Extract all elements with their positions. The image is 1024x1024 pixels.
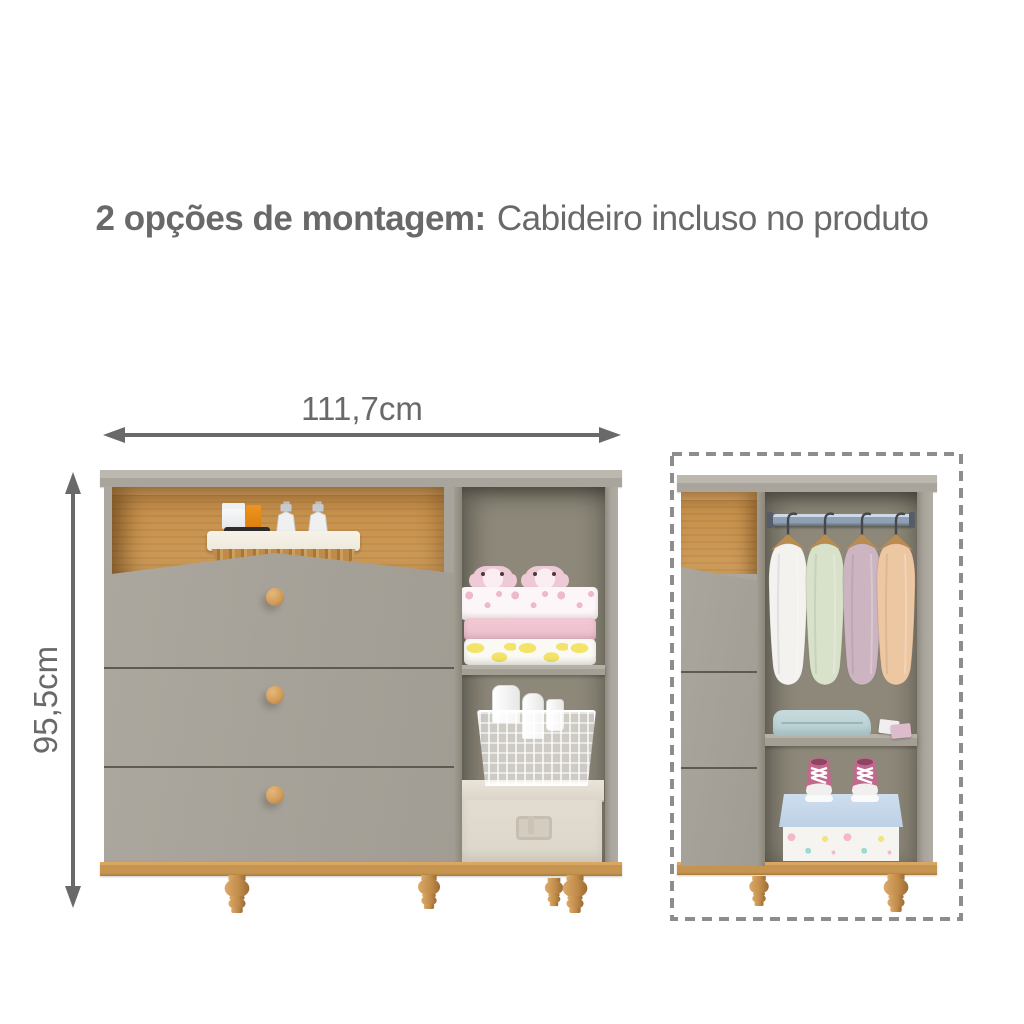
dresser-option-view bbox=[100, 470, 622, 912]
blanket-pink-print bbox=[460, 587, 598, 620]
wardrobe-cabinet bbox=[677, 475, 937, 910]
drawer-2 bbox=[104, 669, 454, 766]
folded-teal-blanket bbox=[773, 710, 871, 736]
drawer-knob bbox=[266, 686, 284, 704]
height-arrow-icon bbox=[57, 472, 89, 908]
storage-box-beige bbox=[462, 800, 602, 862]
basket-liner bbox=[207, 531, 360, 551]
orange-tube bbox=[246, 505, 261, 529]
right-side-panel bbox=[605, 487, 618, 862]
spray-bottle bbox=[274, 501, 298, 535]
drawer-divider bbox=[681, 671, 757, 673]
drawer-knob bbox=[266, 786, 284, 804]
top-board bbox=[100, 470, 622, 487]
page-title: 2 opções de montagem:Cabideiro incluso n… bbox=[0, 199, 1024, 239]
right-side-panel bbox=[917, 492, 933, 866]
wardrobe-option-view bbox=[670, 452, 963, 921]
blanket-pink bbox=[464, 618, 596, 641]
top-board bbox=[677, 475, 937, 492]
title-regular: Cabideiro incluso no produto bbox=[497, 199, 929, 238]
drawer-1 bbox=[104, 553, 454, 667]
width-dimension-label: 111,7cm bbox=[103, 390, 621, 428]
open-shelf-column bbox=[462, 487, 605, 862]
drawer-3 bbox=[104, 768, 454, 862]
drawer-divider bbox=[681, 767, 757, 769]
hanging-garment-peach bbox=[873, 506, 919, 696]
pink-sneakers bbox=[799, 756, 889, 806]
base-board bbox=[100, 862, 622, 876]
box-handle bbox=[516, 816, 552, 840]
center-divider-panel bbox=[454, 487, 462, 862]
spray-bottle bbox=[306, 501, 330, 535]
hanging-compartment bbox=[765, 492, 917, 866]
plastic-storage-basket bbox=[477, 710, 596, 786]
center-divider-panel bbox=[757, 492, 765, 866]
drawer-divider bbox=[104, 667, 454, 669]
drawer-knob bbox=[266, 588, 284, 606]
wipes-pack bbox=[222, 503, 245, 529]
width-arrow-icon bbox=[103, 424, 621, 446]
wood-niche-shelf bbox=[681, 492, 757, 574]
drawer-divider bbox=[104, 766, 454, 768]
product-infographic: 2 opções de montagem:Cabideiro incluso n… bbox=[0, 0, 1024, 1024]
card-item bbox=[890, 723, 911, 739]
cabinet-body bbox=[681, 492, 933, 866]
blanket-banana-print bbox=[464, 639, 596, 665]
turned-feet bbox=[100, 875, 622, 913]
shelf-divider bbox=[462, 665, 605, 675]
keepsake-box bbox=[783, 827, 899, 861]
turned-feet bbox=[677, 874, 937, 912]
title-bold: 2 opções de montagem: bbox=[96, 199, 486, 238]
cabinet-body bbox=[104, 487, 618, 862]
